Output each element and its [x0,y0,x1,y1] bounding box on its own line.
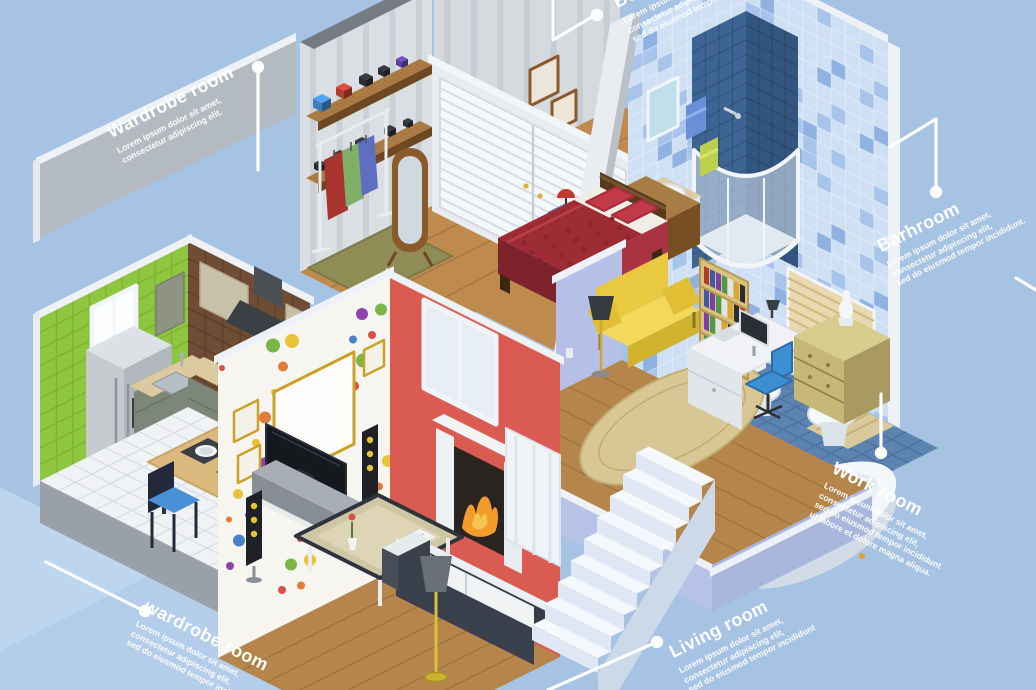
connector-dot [875,447,887,459]
connector-dot [930,186,942,198]
connector-dot [252,61,264,73]
connector-dot [139,605,151,617]
house-illustration [0,0,1036,690]
connector-dot [591,9,603,21]
isometric-house-infographic: Wardrobe room Lorem ipsum dolor sit amet… [0,0,1036,690]
connector-dot [651,636,663,648]
